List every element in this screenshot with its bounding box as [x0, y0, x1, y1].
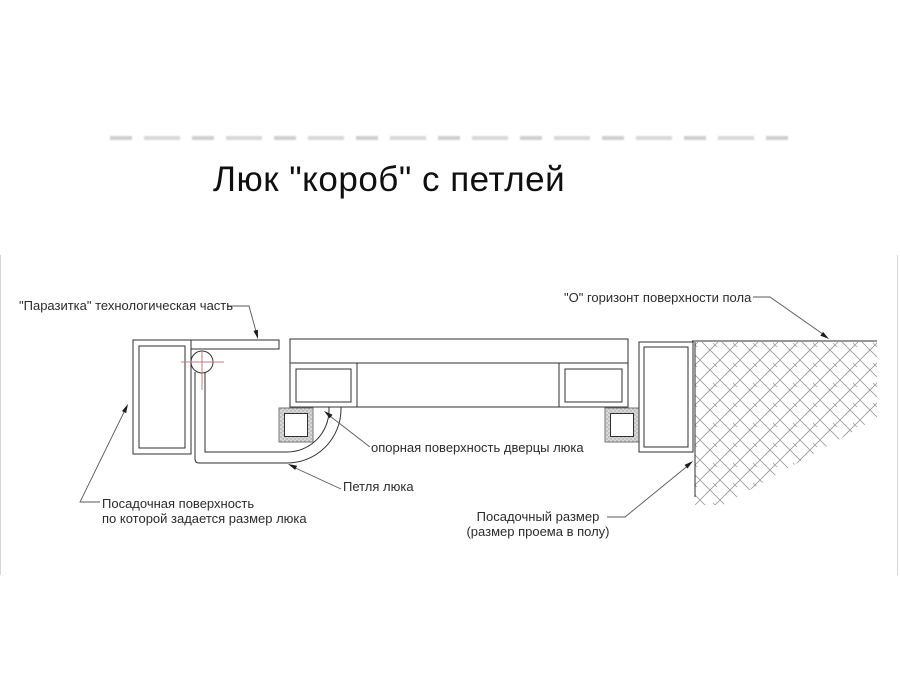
- label-floor-horizon: "О" горизонт поверхности пола: [564, 290, 751, 305]
- leader-door-support: [326, 413, 370, 447]
- hinge-pivot: [181, 350, 224, 390]
- label-seating-size: Посадочный размер (размер проема в полу): [448, 509, 628, 539]
- floor-slab-section: [692, 341, 877, 505]
- leader-floor-horizon: [753, 297, 827, 337]
- label-seating-size-line1: Посадочный размер: [448, 509, 628, 524]
- label-door-support: опорная поверхность дверцы люка: [371, 440, 584, 455]
- leader-hinge: [291, 466, 341, 489]
- arrow-parazitka: [253, 330, 260, 340]
- label-hinge: Петля люка: [343, 479, 414, 494]
- leader-seating-surface: [80, 408, 126, 502]
- label-seating-size-line2: (размер проема в полу): [448, 524, 628, 539]
- door-panel: [290, 339, 628, 407]
- left-frame-profile: [133, 340, 191, 454]
- parasite-bar: [191, 340, 279, 349]
- label-parazitka: "Паразитка" технологическая часть: [19, 298, 233, 313]
- support-block-right: [605, 408, 639, 442]
- drawing-page: Люк "короб" с петлей: [0, 0, 900, 700]
- hatch-section-drawing: [0, 0, 900, 700]
- right-frame-profile: [639, 342, 693, 452]
- arrow-seating-surface: [122, 403, 130, 413]
- support-block-left: [279, 408, 313, 442]
- label-seating-surface-line2: по которой задается размер люка: [102, 511, 307, 526]
- label-seating-surface-line1: Посадочная поверхность: [102, 496, 307, 511]
- label-seating-surface: Посадочная поверхность по которой задает…: [102, 496, 307, 526]
